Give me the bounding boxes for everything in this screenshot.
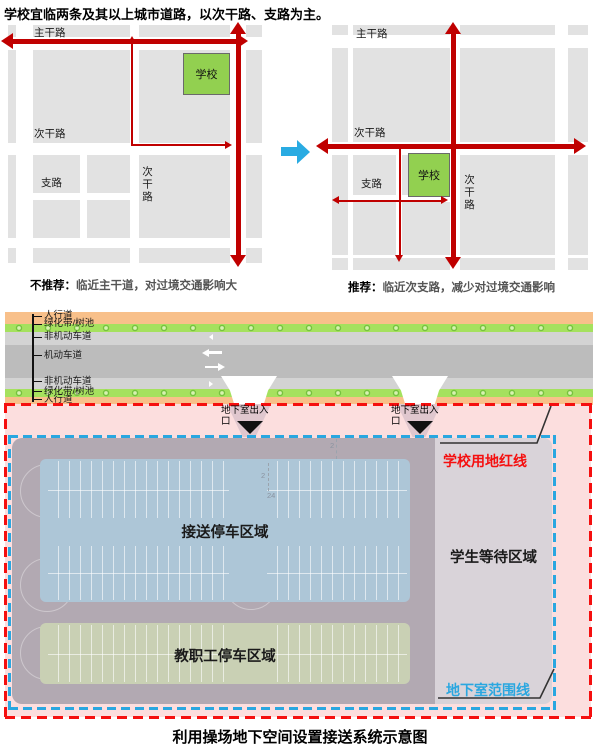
caption-text: 临近次支路，减少对过境交通影响: [383, 282, 556, 294]
city-block: [139, 25, 230, 37]
school-label: 学校: [418, 167, 440, 183]
city-block: [568, 258, 588, 270]
city-block: [8, 155, 16, 238]
main-road-arrow-bar: [12, 39, 238, 44]
blue-boundary-right: [553, 435, 556, 710]
branch-road-thin-line: [338, 200, 442, 202]
cad-mark: 2: [261, 471, 265, 480]
secondary-road-arrow-bar: [451, 33, 456, 259]
road-label-branch: 支路: [361, 178, 382, 190]
road-label-main: 主干路: [356, 28, 388, 40]
city-block: [139, 248, 230, 263]
cad-centerline: [336, 439, 337, 459]
city-block: [246, 50, 262, 143]
city-block: [87, 200, 130, 238]
stall-grid: [267, 461, 407, 518]
transform-arrow-icon: [281, 147, 297, 156]
page-title: 学校宜临两条及其以上城市道路，以次干路、支路为主。: [4, 4, 329, 23]
cad-mark: 24: [267, 491, 275, 500]
lane-chevron-icon: [209, 334, 213, 340]
cad-centerline: [268, 463, 269, 491]
arrowhead-right-icon: [574, 138, 586, 154]
city-block: [33, 200, 80, 238]
stall-grid: [48, 546, 229, 600]
road-label-secondary: 次干路: [34, 128, 66, 140]
basement-entrance-label-line1: 地下室出入: [221, 405, 275, 416]
red-boundary-top: [5, 403, 591, 406]
road-map-recommended: 学校 主干路 次干路 支路 次干路: [330, 25, 590, 270]
arrowhead-down-icon: [445, 257, 461, 269]
page: 学校宜临两条及其以上城市道路，以次干路、支路为主。 学校: [0, 0, 600, 749]
red-boundary-left: [4, 403, 7, 719]
city-block: [460, 258, 555, 270]
figure-caption: 利用操场地下空间设置接送系统示意图: [0, 726, 600, 747]
entrance-triangle-icon: [407, 421, 433, 434]
arrowhead-left-icon: [316, 138, 328, 154]
bracket-tick: [32, 391, 42, 393]
lane-chevron-icon: [209, 381, 213, 387]
arrowhead-left-icon: [1, 33, 13, 49]
entrance-triangle-icon: [237, 421, 263, 434]
arrowhead-right-icon: [225, 141, 232, 149]
basement-line-label: 地下室范围线: [446, 680, 530, 700]
road-layer-label: 非机动车道: [44, 331, 92, 343]
city-block: [353, 202, 396, 255]
blue-boundary-top: [9, 435, 554, 438]
staff-area-label: 教职工停车区域: [40, 645, 410, 666]
red-boundary-bottom: [5, 716, 591, 719]
road-layer-label: 绿化带/树池: [44, 318, 94, 330]
arrowhead-down-icon: [395, 255, 403, 262]
road-label-branch: 支路: [41, 177, 62, 189]
city-block: [460, 25, 555, 35]
lane-arrow-right-icon: [205, 366, 218, 369]
caption-not-recommended: 不推荐：临近主干道，对过境交通影响大: [30, 277, 237, 293]
city-block: [246, 248, 262, 263]
city-block: [332, 258, 348, 270]
blue-boundary-bottom: [9, 707, 554, 710]
caption-recommended: 推荐：临近次支路，减少对过境交通影响: [348, 279, 555, 295]
road-label-secondary-vertical: 次干路: [463, 174, 475, 212]
city-block: [33, 248, 130, 263]
motor-lane: [5, 345, 593, 378]
red-boundary-right: [589, 403, 592, 719]
bracket-tick: [32, 316, 42, 318]
city-block: [8, 248, 16, 263]
bracket-tick: [32, 337, 42, 339]
bracket-tick: [32, 381, 42, 383]
city-block: [332, 155, 348, 255]
secondary-road-thin-line: [131, 144, 226, 146]
stall-grid: [48, 461, 229, 518]
transform-arrow-icon: [297, 140, 310, 164]
bracket-tick: [32, 355, 42, 357]
road-map-not-recommended: 学校 主干路 次干路 支路 次干路: [8, 25, 262, 270]
bracket-tick: [32, 399, 42, 401]
lane-arrow-left-icon: [202, 349, 209, 357]
blue-boundary-left: [8, 435, 11, 710]
basement-entrance-label-line1: 地下室出入: [391, 405, 445, 416]
road-label-secondary-vertical: 次干路: [141, 166, 153, 204]
arrowhead-right-icon: [441, 196, 448, 204]
city-block: [568, 25, 588, 35]
road-label-secondary: 次干路: [354, 127, 386, 139]
stall-grid: [267, 546, 407, 600]
school-block: 学校: [408, 153, 450, 197]
arrowhead-up-icon: [230, 22, 246, 34]
city-block: [460, 48, 555, 142]
city-block: [246, 155, 262, 238]
bracket-tick: [32, 324, 42, 326]
city-block: [568, 155, 588, 255]
arrowhead-up-icon: [445, 22, 461, 34]
waiting-area-label: 学生等待区域: [435, 546, 552, 567]
city-block: [332, 48, 348, 142]
cad-mark: 2: [330, 441, 334, 450]
city-block: [332, 25, 348, 35]
road-layer-label: 机动车道: [44, 350, 82, 362]
secondary-road-arrow-bar: [236, 33, 241, 257]
city-block: [402, 202, 450, 255]
lane-arrow-right-icon: [218, 363, 225, 371]
nonmotor-lane-top: [5, 332, 593, 345]
school-label: 学校: [196, 66, 218, 82]
city-block: [87, 155, 130, 193]
city-block: [568, 48, 588, 142]
lane-arrow-left-icon: [209, 351, 222, 354]
city-block: [246, 25, 262, 37]
caption-text: 临近主干道，对过境交通影响大: [76, 280, 237, 292]
waiting-area: [435, 438, 552, 704]
secondary-road-thin-line: [131, 43, 133, 145]
caption-tag: 不推荐：: [30, 280, 76, 292]
road-label-main: 主干路: [34, 27, 66, 39]
pickup-area-label: 接送停车区域: [40, 521, 410, 542]
city-block: [8, 50, 16, 143]
arrowhead-left-icon: [332, 196, 339, 204]
red-line-label: 学校用地红线: [443, 451, 527, 471]
caption-tag: 推荐：: [348, 282, 383, 294]
label-bracket: [32, 314, 34, 402]
school-block: 学校: [183, 53, 230, 95]
arrowhead-down-icon: [230, 255, 246, 267]
